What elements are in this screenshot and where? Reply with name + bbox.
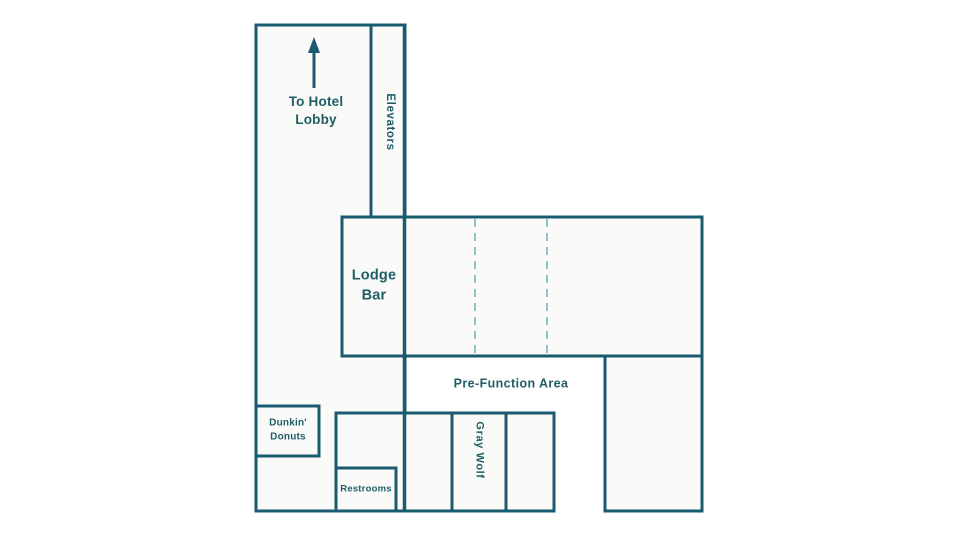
to-hotel-lobby-label: To Hotel Lobby	[289, 93, 344, 129]
gray-wolf-label: Gray Wolf	[472, 421, 487, 478]
elevators-label: Elevators	[381, 93, 397, 150]
restrooms-label: Restrooms	[340, 484, 391, 497]
lodge-bar-label: Lodge Bar	[352, 266, 397, 305]
dunkin-donuts-label: Dunkin' Donuts	[269, 417, 307, 444]
pre-function-area-label: Pre-Function Area	[454, 376, 569, 393]
right-room	[605, 356, 702, 511]
hotel-floor-plan: To Hotel Lobby Elevators Lodge Bar Pre-F…	[0, 0, 960, 540]
